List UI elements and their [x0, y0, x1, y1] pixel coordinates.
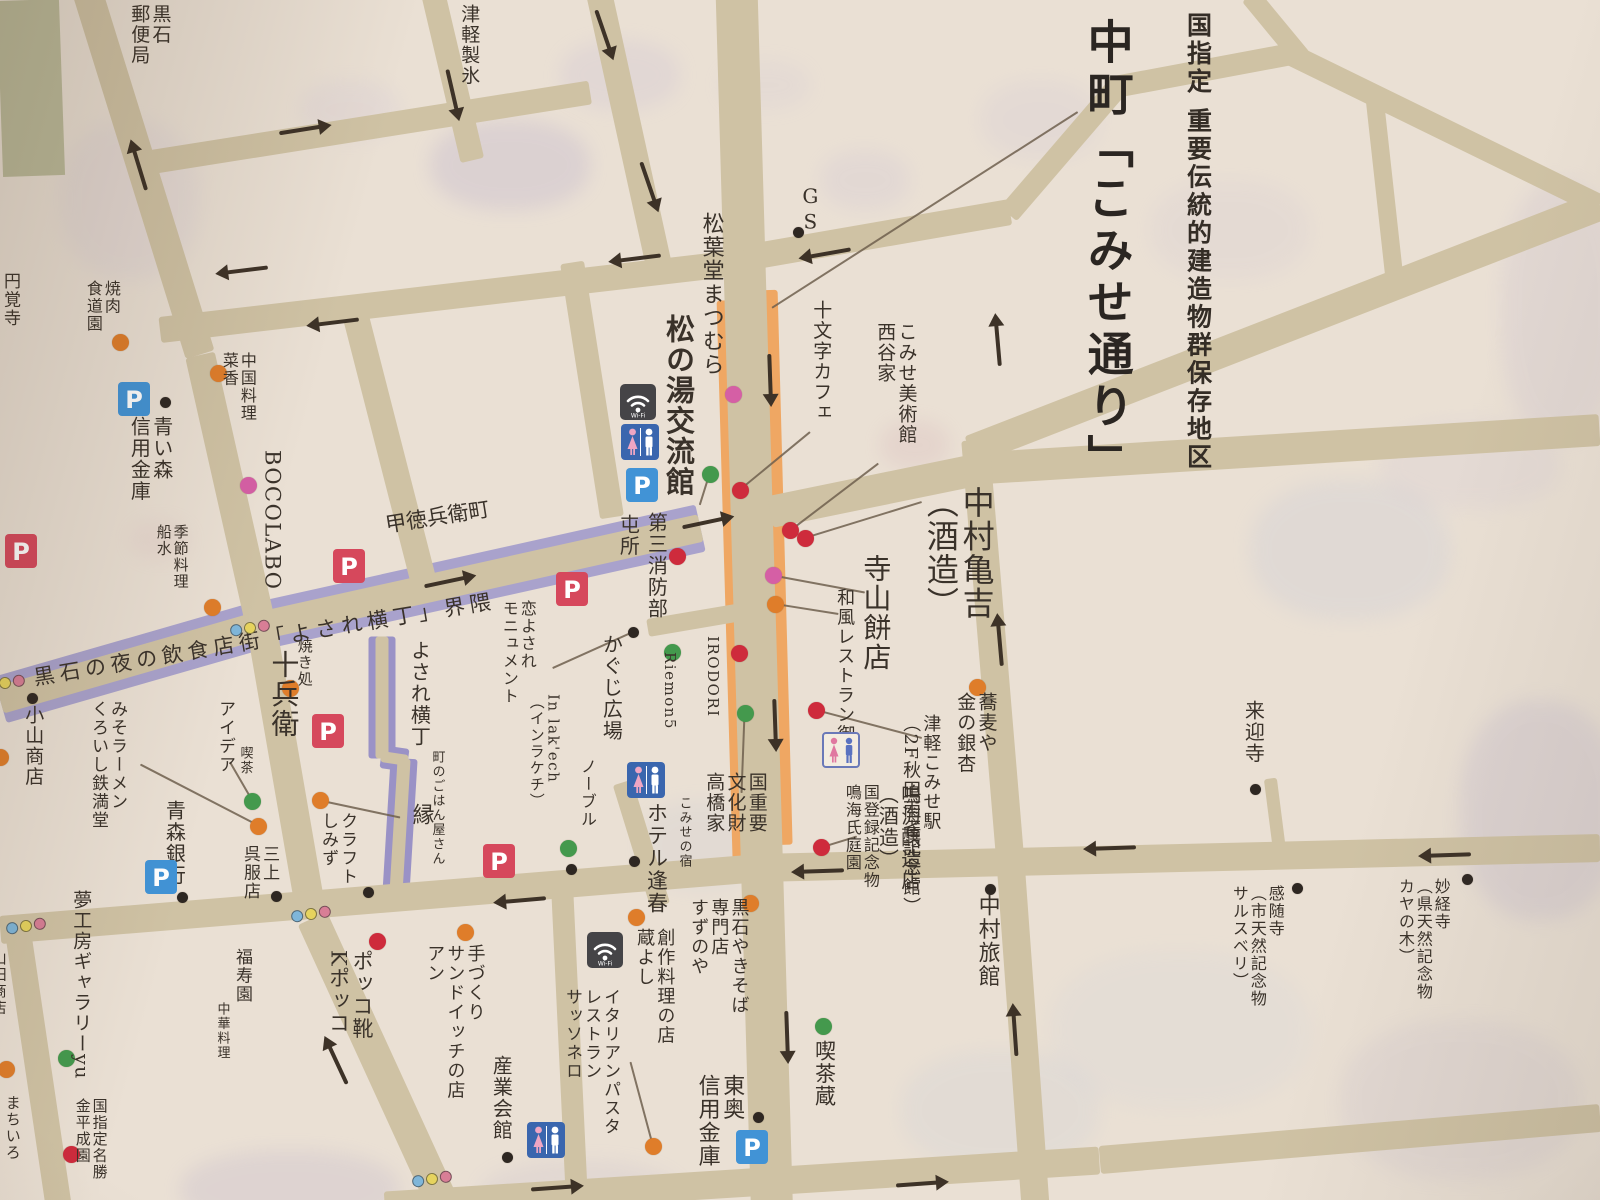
- poi-dot: [0, 749, 9, 766]
- poi-dot: [782, 522, 799, 539]
- svg-text:P: P: [125, 386, 143, 414]
- road: [128, 80, 592, 177]
- svg-text:P: P: [633, 472, 651, 500]
- one-way-arrow: [784, 1011, 789, 1053]
- parking-icon-blue: P: [118, 382, 150, 420]
- poi-label-jube: 十兵衛: [268, 650, 299, 739]
- one-way-arrow: [994, 324, 1002, 366]
- traffic-light-lamp: [5, 921, 19, 935]
- arrow-shaft: [784, 1011, 789, 1053]
- poi-dot: [566, 864, 577, 875]
- road: [996, 859, 1049, 1200]
- poi-label-koiyosare-monument: 恋よされ モニュメント: [500, 600, 536, 705]
- poi-label-raigoji-temple: 来迎寺: [1242, 700, 1264, 765]
- restroom-icon: [627, 762, 665, 802]
- wifi-icon: Wi-Fi: [620, 384, 656, 424]
- poi-dot: [669, 548, 686, 565]
- traffic-light-lamp: [33, 917, 47, 931]
- poi-label-kaguji-hiroba: かぐじ広場: [600, 634, 622, 742]
- poi-dot: [0, 1061, 15, 1078]
- poi-label-narumi-garden: 国登録記念物 鳴海氏庭園: [843, 784, 879, 889]
- arrow-head: [607, 252, 622, 269]
- parking-icon-blue: P: [145, 860, 177, 898]
- poi-label-bocolabo: BOCOLABO: [260, 450, 284, 590]
- poi-dot: [177, 892, 188, 903]
- poi-label-craft-shimizu: クラフト しみず: [318, 812, 356, 886]
- poi-label-idea: アイデア: [215, 700, 234, 774]
- poi-dot: [204, 599, 221, 616]
- poi-dot: [985, 884, 996, 895]
- traffic-light-lamp: [425, 1172, 439, 1186]
- poi-label-irodori: IRODORI: [704, 636, 721, 718]
- poi-label-tsugaru-seihyo: 津軽製氷: [458, 4, 479, 86]
- poi-label-sangyo-kaikan: 産業会館: [490, 1055, 512, 1141]
- paper-mottle: [1340, 1020, 1580, 1180]
- poi-label-chuka-ryori: 中華料理: [214, 1002, 229, 1060]
- poi-label-noble: ノーブル: [578, 758, 596, 828]
- restroom-icon: [822, 732, 860, 772]
- poi-dot: [808, 702, 825, 719]
- paper-mottle: [180, 1150, 400, 1200]
- paper-mottle: [1150, 180, 1310, 280]
- arrow-head: [987, 312, 1004, 326]
- poi-label-kanzuiji-temple: 感随寺 （市天然記念物 サルスベリ）: [1230, 885, 1284, 1008]
- arrow-head: [214, 264, 229, 281]
- poi-dot: [702, 466, 719, 483]
- arrow-head: [318, 117, 333, 135]
- road: [743, 199, 1012, 271]
- one-way-arrow: [327, 1045, 348, 1085]
- poi-label-tonsho: 屯所: [617, 514, 639, 557]
- arrow-head: [935, 1174, 949, 1191]
- arrow-head: [1418, 848, 1432, 864]
- poi-label-koyama-shoten: 小山商店: [22, 705, 43, 787]
- poi-dot: [27, 693, 38, 704]
- poi-label-komise-museum-nishitaniya: こみせ美術館 西谷家: [874, 322, 917, 445]
- poi-label-kisetsu-ryori-funamizu: 季節料理 船水: [155, 524, 189, 590]
- arrow-head: [763, 394, 779, 408]
- svg-text:P: P: [319, 718, 337, 746]
- poi-label-kurayoshi: 創作料理の店 蔵よし: [634, 928, 674, 1045]
- paper-mottle: [820, 150, 910, 210]
- wifi-icon: Wi-Fi: [587, 932, 623, 972]
- poi-dot: [753, 1112, 764, 1123]
- poi-dot: [737, 705, 754, 722]
- poi-label-yamada-shoten: 山田商店: [0, 950, 7, 1016]
- poi-label-aoimori-shinkin-bank: 青い森 信用金庫: [128, 416, 173, 502]
- poi-dot: [813, 839, 830, 856]
- poi-label-kissa-kura: 喫茶蔵: [812, 1040, 836, 1108]
- arrow-head: [305, 316, 320, 333]
- road: [158, 249, 746, 343]
- poi-label-matsubado-matsumura: 松葉堂まつむら: [698, 212, 723, 377]
- road: [1282, 42, 1600, 215]
- traffic-light-lamp: [0, 676, 12, 690]
- poi-dot: [725, 386, 742, 403]
- poi-label-matsunoyu-koryukan: 松の湯交流館: [662, 314, 694, 497]
- poi-dot: [112, 334, 129, 351]
- map-subtitle: 国指定 重要伝統的建造物群保存地区: [1184, 12, 1212, 472]
- traffic-light-lamp: [439, 1170, 453, 1184]
- svg-text:P: P: [490, 848, 508, 876]
- road: [560, 260, 624, 519]
- poi-dot: [312, 792, 329, 809]
- arrow-shaft: [327, 1045, 348, 1085]
- poi-dot: [457, 924, 474, 941]
- poi-dot: [240, 477, 257, 494]
- poi-label-hotel-hoshun: ホテル逢春: [644, 802, 668, 915]
- arrow-shaft: [994, 324, 1002, 366]
- arrow-head: [492, 894, 506, 911]
- poi-label-komise-no-yado: こみせの宿: [676, 796, 691, 869]
- parking-icon-red: P: [556, 572, 588, 610]
- svg-text:Wi-Fi: Wi-Fi: [631, 413, 646, 420]
- poi-dot: [767, 596, 784, 613]
- arrow-head: [780, 1051, 796, 1065]
- poi-label-enkakuji-temple: 円覚寺: [0, 272, 19, 328]
- arrow-head: [791, 864, 805, 880]
- parking-icon-red: P: [312, 714, 344, 752]
- poi-dot: [797, 530, 814, 547]
- leader-line: [629, 1062, 653, 1145]
- poi-dot: [160, 397, 171, 408]
- poi-dot: [369, 933, 386, 950]
- arrow-head: [1005, 1003, 1022, 1017]
- traffic-light-lamp: [411, 1174, 425, 1188]
- poi-label-takahashi-house: 国重要 文化財 高橋家: [703, 772, 767, 834]
- paper-mottle: [1460, 700, 1600, 920]
- poi-label-nakamura-ryokan: 中村旅館: [974, 894, 999, 988]
- svg-text:Wi-Fi: Wi-Fi: [598, 961, 613, 968]
- poi-label-kissa: 喫茶: [237, 746, 252, 775]
- arrow-head: [797, 248, 813, 266]
- poi-label-tezukuri-sandwich-an: 手づくり サンドイッチの店 アン: [424, 944, 484, 1100]
- svg-text:P: P: [563, 576, 581, 604]
- poi-label-yumekobo-gallery-yu: 夢工房ギャラリーyu: [70, 890, 91, 1080]
- road: [376, 636, 389, 758]
- poi-label-yosare-yokocho: よされ横丁: [408, 640, 430, 748]
- poi-label-fukujuen: 福寿園: [232, 948, 251, 1004]
- traffic-light-lamp: [12, 674, 26, 688]
- traffic-light-lamp: [290, 909, 304, 923]
- poi-dot: [815, 1018, 832, 1035]
- svg-text:P: P: [743, 1134, 761, 1162]
- arrow-head: [768, 739, 784, 753]
- poi-dot: [1462, 874, 1473, 885]
- poi-dot: [731, 645, 748, 662]
- arrow-head: [570, 1178, 584, 1195]
- poi-label-myokyoji-temple: 妙経寺 （県天然記念物 カヤの木）: [1396, 878, 1450, 1001]
- poi-dot: [502, 1152, 513, 1163]
- one-way-arrow: [226, 265, 268, 274]
- traffic-light-lamp: [19, 919, 33, 933]
- road: [1366, 97, 1406, 299]
- restroom-icon: [527, 1122, 565, 1162]
- parking-icon-blue: P: [736, 1130, 768, 1168]
- traffic-light-lamp: [257, 619, 271, 633]
- parking-icon-red: P: [483, 844, 515, 882]
- tourist-map-kuroishi-komise: 中町「こみせ通り」 国指定 重要伝統的建造物群保存地区 Wi-Fi Wi-Fi …: [0, 0, 1600, 1200]
- poi-dot: [1250, 784, 1261, 795]
- parking-icon-red: P: [5, 534, 37, 572]
- kaguji-plaza-area: [0, 0, 65, 177]
- poi-dot: [629, 856, 640, 867]
- poi-label-daisan-shobobu: 第三消防部: [645, 512, 667, 620]
- poi-label-chinese-restaurant-saika: 中国料理 菜香: [220, 352, 256, 422]
- parking-icon-blue: P: [626, 468, 658, 506]
- poi-dot: [560, 840, 577, 857]
- map-title: 中町「こみせ通り」: [1082, 18, 1133, 486]
- parking-icon-red: P: [333, 549, 365, 587]
- traffic-light-lamp: [304, 907, 318, 921]
- poi-dot: [628, 627, 639, 638]
- poi-dot: [628, 909, 645, 926]
- traffic-light-lamp: [243, 621, 257, 635]
- poi-label-in-lakech: In lak'ech （インラケチ）: [528, 694, 562, 810]
- poi-label-yakiniku-shokudoen: 焼肉 食道園: [84, 280, 120, 333]
- poi-label-nakamura-kamekichi-brewery: 中村亀吉 （酒造）: [922, 486, 994, 620]
- poi-dot: [244, 793, 261, 810]
- poi-label-miso-ramen-tetsumando: みそラーメン くろいし鉄満堂: [88, 700, 126, 830]
- poi-label-riemon5: Riemon5: [661, 652, 678, 730]
- poi-label-sobaya-kin-no-icho: 蕎麦や 金の銀杏: [954, 692, 997, 774]
- poi-dot: [732, 482, 749, 499]
- arrow-head: [1083, 841, 1097, 857]
- poi-label-kanehira-narien: 国指定名勝 金平成園: [74, 1098, 108, 1181]
- restroom-icon: [621, 424, 659, 464]
- svg-text:P: P: [152, 864, 170, 892]
- poi-dot: [1292, 883, 1303, 894]
- poi-label-jumonji-cafe: 十文字カフェ: [810, 300, 831, 423]
- poi-dot: [250, 818, 267, 835]
- traffic-light-lamp: [229, 623, 243, 637]
- traffic-light-lamp: [318, 905, 332, 919]
- poi-dot: [363, 887, 374, 898]
- poi-label-sassonero: イタリアンパスタ レストラン サッソネロ: [562, 988, 619, 1136]
- road: [1099, 1104, 1600, 1174]
- poi-label-en: 縁: [408, 803, 433, 827]
- poi-label-terayama-mochiten: 寺山餅店: [860, 554, 891, 672]
- poi-label-kuroishi-yakisoba-suzunoya: 黒石やきそば 専門店 すずのや: [688, 898, 748, 1015]
- poi-label-gs-gas-station: GS: [799, 184, 821, 235]
- arrow-shaft: [226, 265, 268, 274]
- poi-label-machiiro: まちいろ: [4, 1095, 21, 1161]
- svg-text:P: P: [12, 538, 30, 566]
- poi-label-narumi-jozoten-brewery: 鳴海醸造店 （酒造）: [876, 784, 921, 892]
- poi-label-mikami-gofukuten: 三上 呉服店: [240, 845, 278, 901]
- paper-mottle: [1250, 480, 1450, 620]
- poi-label-pokko-shoes: ポッコ靴 Kポッコ: [326, 950, 373, 1040]
- poi-dot: [645, 1138, 662, 1155]
- poi-dot: [765, 567, 782, 584]
- road: [585, 0, 672, 275]
- poi-label-kuroishi-post-office: 黒石 郵便局: [128, 4, 171, 66]
- svg-text:P: P: [340, 553, 358, 581]
